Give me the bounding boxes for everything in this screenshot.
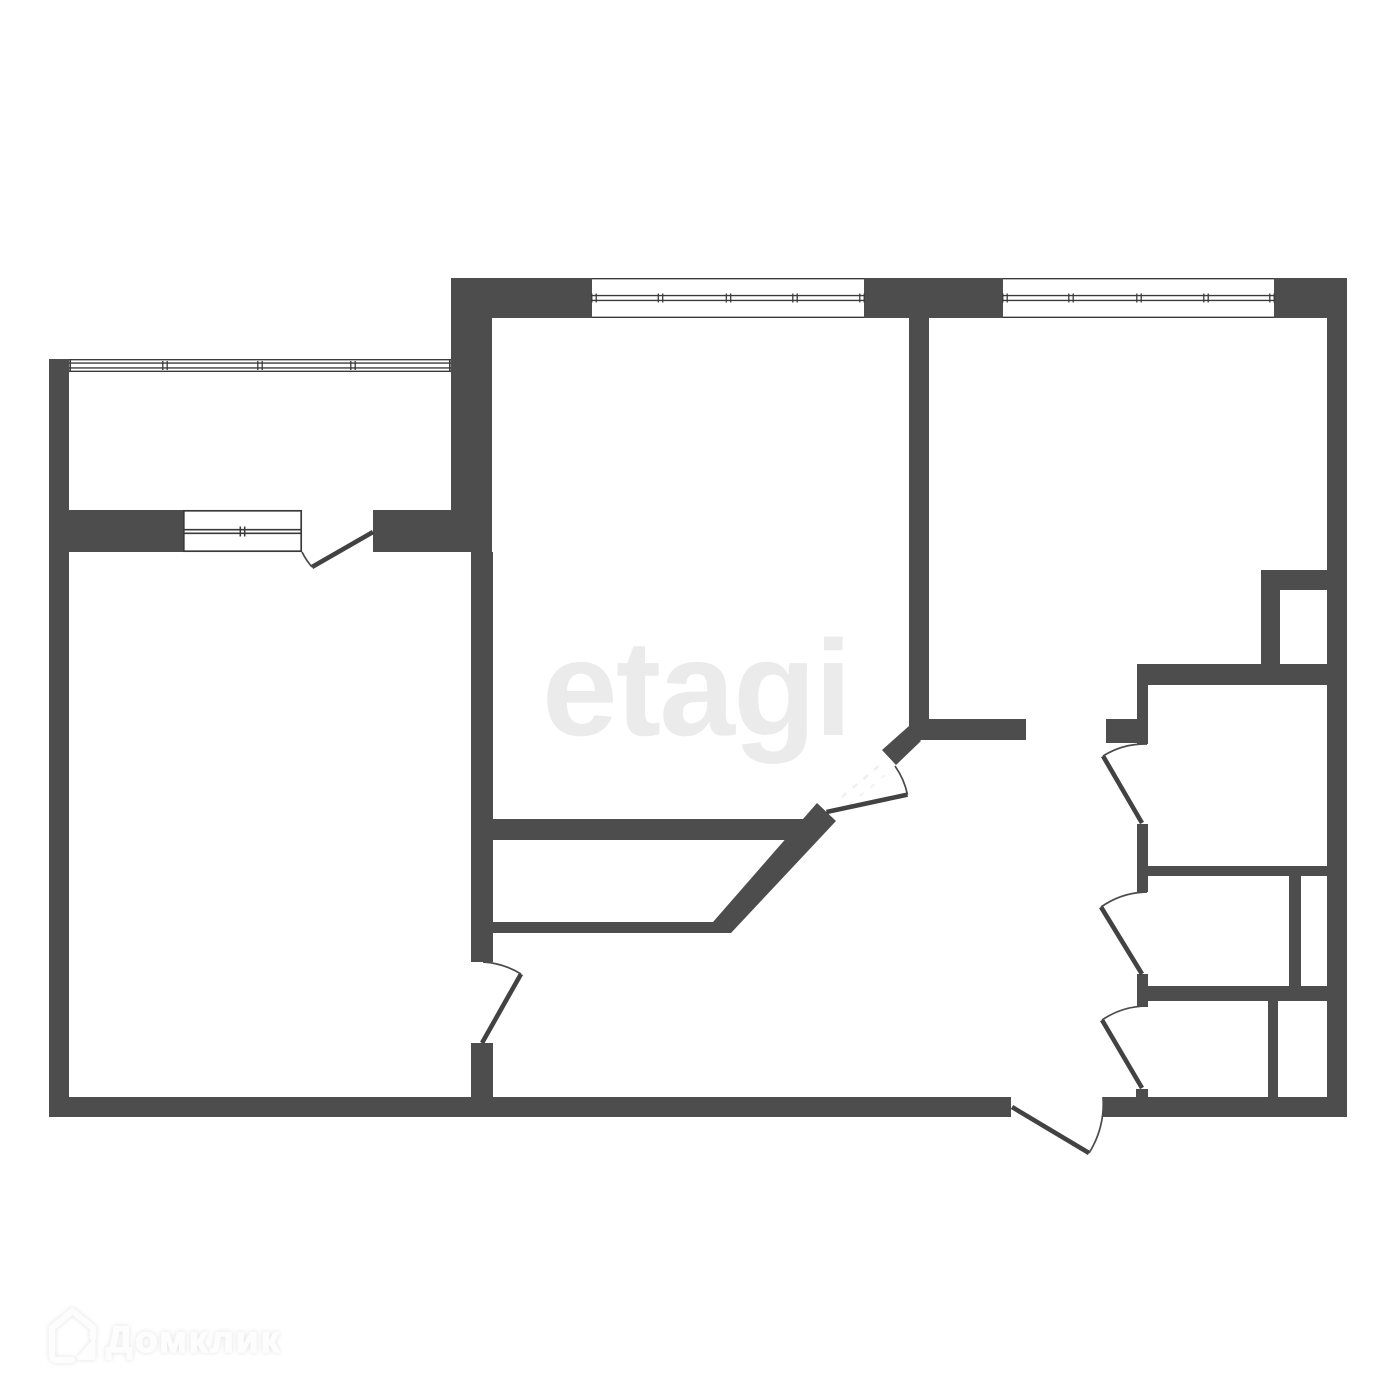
svg-text:etagi: etagi — [542, 612, 850, 764]
svg-text:Домклик: Домклик — [106, 1319, 281, 1360]
